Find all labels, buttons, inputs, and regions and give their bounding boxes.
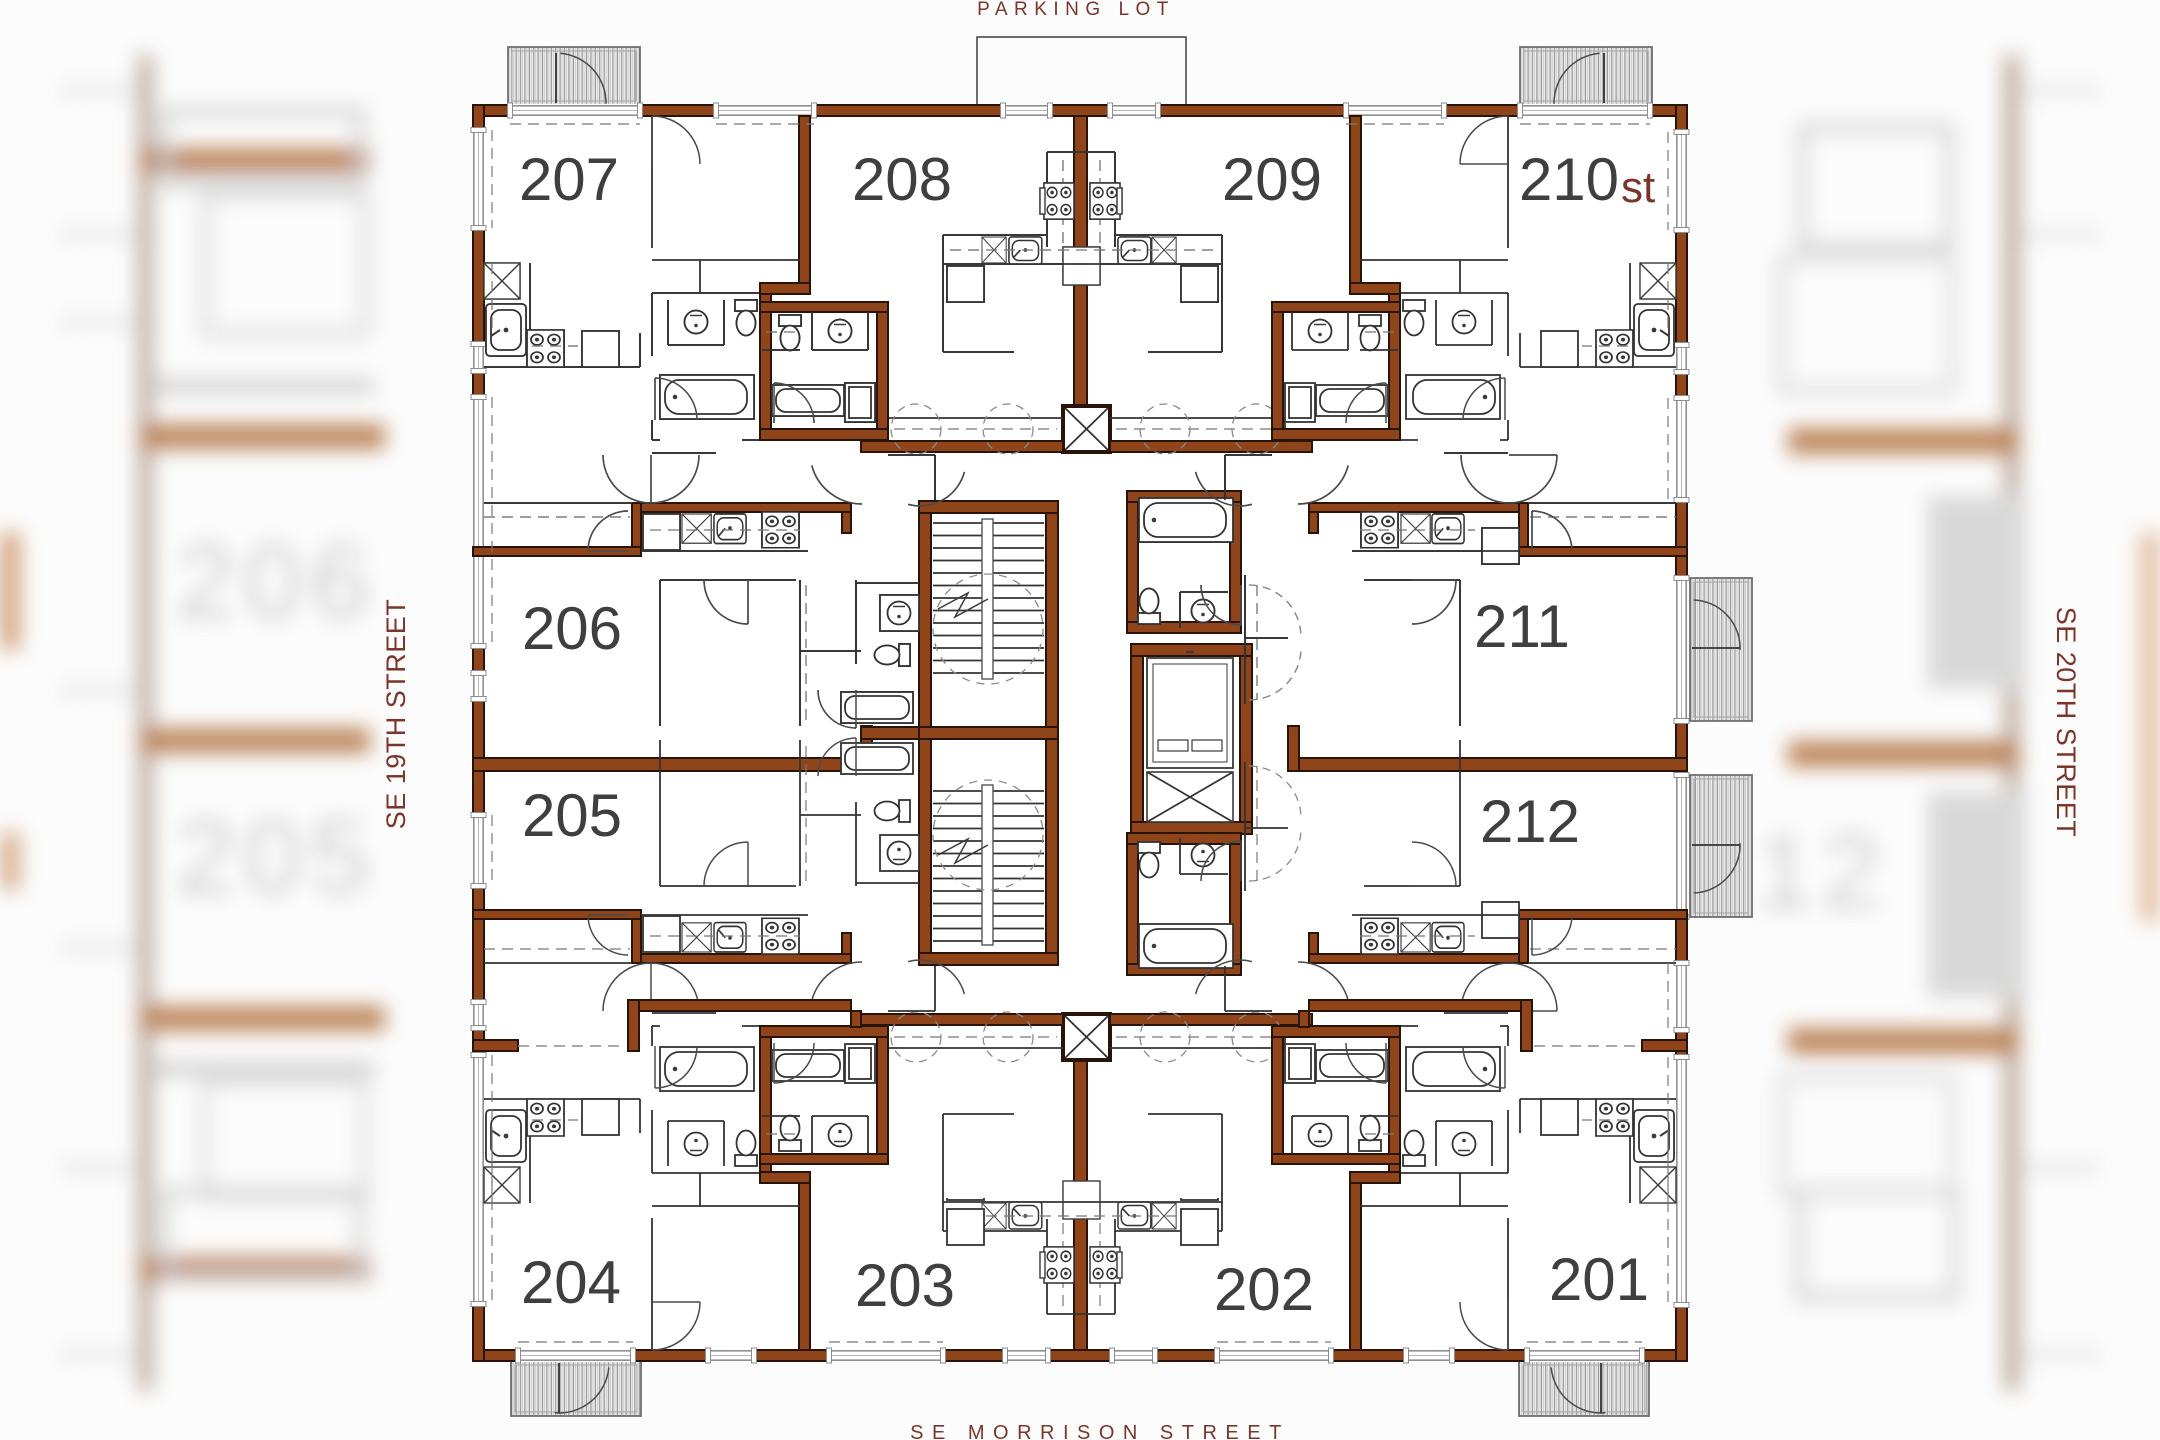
svg-text:SE MORRISON STREET: SE MORRISON STREET — [910, 1422, 1290, 1440]
svg-text:SE 20TH STREET: SE 20TH STREET — [2051, 607, 2081, 838]
svg-text:12: 12 — [1755, 813, 1889, 931]
svg-text:202: 202 — [1214, 1256, 1314, 1323]
svg-text:201: 201 — [1549, 1246, 1649, 1313]
svg-text:205: 205 — [177, 798, 378, 916]
svg-text:209: 209 — [1222, 146, 1322, 213]
svg-text:203: 203 — [855, 1252, 955, 1319]
svg-text:204: 204 — [521, 1249, 621, 1316]
svg-text:208: 208 — [852, 146, 952, 213]
svg-text:206: 206 — [522, 595, 622, 662]
svg-text:st: st — [1621, 163, 1655, 212]
svg-text:205: 205 — [522, 782, 622, 849]
svg-text:207: 207 — [519, 146, 619, 213]
svg-text:212: 212 — [1480, 788, 1580, 855]
svg-text:206: 206 — [177, 523, 378, 641]
svg-text:210: 210 — [1519, 146, 1619, 213]
svg-text:211: 211 — [1474, 593, 1570, 660]
svg-text:SE 19TH STREET: SE 19TH STREET — [381, 599, 411, 830]
svg-text:PARKING LOT: PARKING LOT — [977, 0, 1175, 20]
